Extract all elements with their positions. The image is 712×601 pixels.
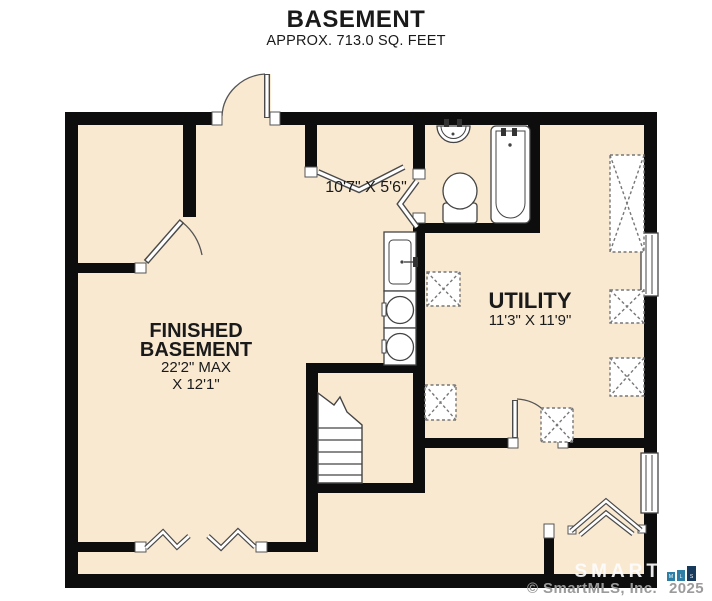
dryer-icon xyxy=(382,328,416,365)
wall-utility-bottom-right xyxy=(568,438,644,448)
wall-utility-bottom-left xyxy=(413,438,508,448)
wall-bath-left-upper xyxy=(413,125,425,169)
washer-icon xyxy=(382,291,416,328)
jamb xyxy=(305,167,317,177)
mls-bar-s: S xyxy=(687,566,696,581)
jamb xyxy=(212,112,222,125)
bathtub-icon xyxy=(491,126,530,223)
jamb xyxy=(413,169,425,179)
wall-top-right xyxy=(280,112,657,125)
wall-lower-left-b xyxy=(267,542,318,552)
entry-door-recess xyxy=(222,74,271,117)
wall-hall-stub-left xyxy=(305,125,317,167)
room-label-utility: UTILITY 11'3" X 11'9" xyxy=(452,290,608,330)
room-label-finished-basement: FINISHED BASEMENT 22'2" MAX X 12'1" xyxy=(108,322,284,393)
equipment-box-icon xyxy=(610,290,644,323)
room-dims-line: 11'3" X 11'9" xyxy=(452,312,608,330)
toilet-icon xyxy=(443,173,477,223)
jamb xyxy=(270,112,280,125)
copyright-year: 2025 xyxy=(669,580,704,597)
laundry-sink-icon xyxy=(384,232,418,291)
mls-bars-icon: M L S xyxy=(665,566,696,581)
wall-closet-horizontal xyxy=(78,263,135,273)
wall-bulkhead-stub xyxy=(544,538,554,574)
room-dims-line: 22'2" MAX xyxy=(108,360,284,377)
equipment-box-icon xyxy=(425,385,456,420)
jamb xyxy=(508,438,518,448)
floorplan: BASEMENT APPROX. 713.0 SQ. FEET xyxy=(0,0,712,601)
room-name-line: BASEMENT xyxy=(108,341,284,360)
jamb xyxy=(135,263,146,273)
window-icon xyxy=(641,453,658,513)
equipment-box-icon xyxy=(610,155,644,252)
plan-title: BASEMENT xyxy=(0,6,712,34)
jamb xyxy=(135,542,146,552)
wall-top-left xyxy=(65,112,212,125)
wall-bath-bottom xyxy=(413,223,540,233)
watermark-logo: SMART M L S xyxy=(574,562,696,581)
equipment-box-icon xyxy=(541,408,573,442)
room-dims-line: X 12'1" xyxy=(108,377,284,394)
copyright-text: © SmartMLS, Inc. xyxy=(527,580,657,597)
wall-closet-vertical xyxy=(183,125,196,217)
wall-right xyxy=(644,112,657,588)
room-name-line: UTILITY xyxy=(452,290,608,312)
watermark-copyright: © SmartMLS, Inc. 2025 xyxy=(527,580,704,597)
jamb xyxy=(256,542,267,552)
plan-subtitle: APPROX. 713.0 SQ. FEET xyxy=(0,33,712,49)
wall-lower-left-a xyxy=(78,542,135,552)
laundry-fixtures xyxy=(382,232,418,365)
jamb xyxy=(544,524,554,538)
watermark-brand-text: SMART xyxy=(574,562,662,581)
room-label-hall-dims: 10'7" X 5'6" xyxy=(300,179,432,197)
wall-stairs-left xyxy=(306,363,318,493)
equipment-box-icon xyxy=(610,358,644,396)
wall-stairs-bottom xyxy=(306,483,413,493)
wall-left xyxy=(65,112,78,588)
